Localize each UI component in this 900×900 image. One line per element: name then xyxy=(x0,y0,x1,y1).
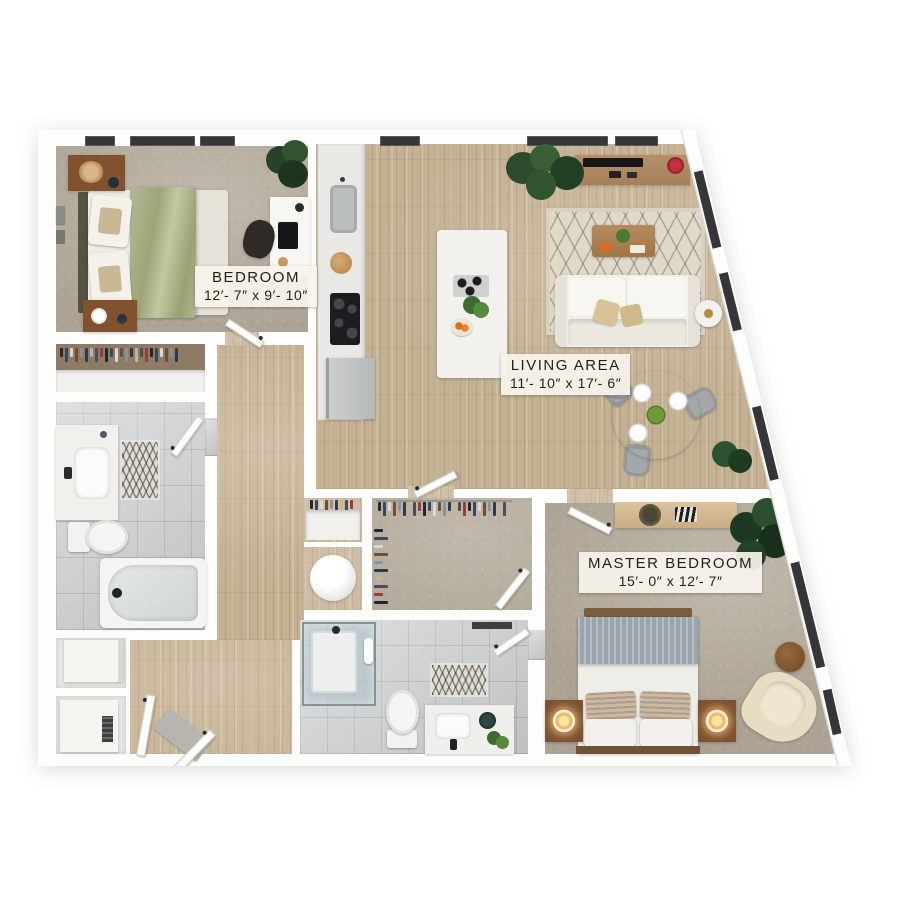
apartment-floorplan: BEDROOM 12′- 7″ x 9′- 10″ LIVING AREA 11… xyxy=(38,130,852,766)
apartment-shell: BEDROOM 12′- 7″ x 9′- 10″ LIVING AREA 11… xyxy=(38,130,852,766)
master-bedroom-label-dims: 15′- 0″ x 12′- 7″ xyxy=(588,573,753,589)
master-bedroom-label: MASTER BEDROOM 15′- 0″ x 12′- 7″ xyxy=(579,552,762,593)
bedroom-label-name: BEDROOM xyxy=(204,269,308,286)
bedroom-label: BEDROOM 12′- 7″ x 9′- 10″ xyxy=(195,266,317,307)
living-area-label-name: LIVING AREA xyxy=(510,357,621,374)
living-area-label: LIVING AREA 11′- 10″ x 17′- 6″ xyxy=(501,354,630,395)
window-icon xyxy=(795,563,821,668)
wall-edge xyxy=(681,130,838,766)
master-bedroom-label-name: MASTER BEDROOM xyxy=(588,555,753,572)
bedroom-label-dims: 12′- 7″ x 9′- 10″ xyxy=(204,287,308,303)
diagonal-wall xyxy=(38,130,852,766)
floorplan-canvas: BEDROOM 12′- 7″ x 9′- 10″ LIVING AREA 11… xyxy=(0,0,900,900)
living-area-label-dims: 11′- 10″ x 17′- 6″ xyxy=(510,375,621,391)
